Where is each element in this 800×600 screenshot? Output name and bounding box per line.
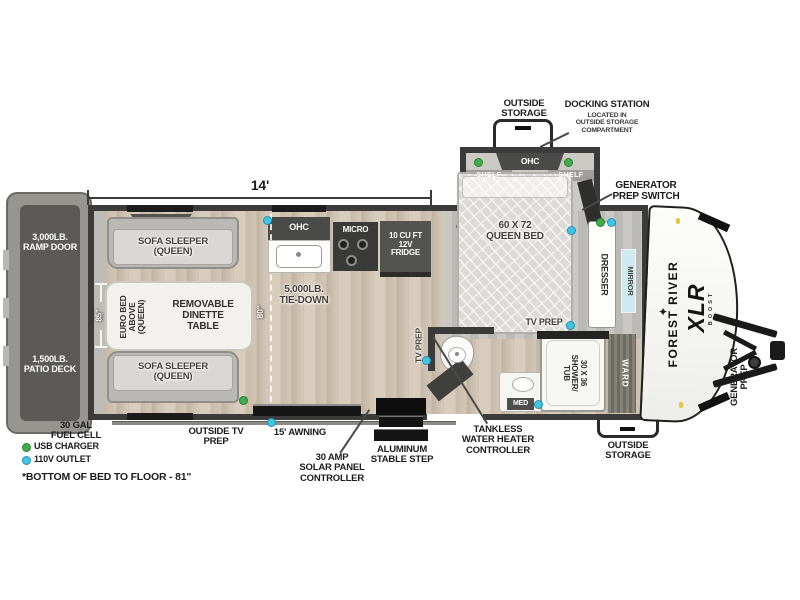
usb-charger-dot: [564, 158, 573, 167]
garage-depth-dim-line: [270, 214, 272, 412]
garage-depth-dim-label: 80": [256, 297, 268, 327]
garage-opening-dim-tick: [95, 283, 107, 285]
kitchen-ohc-label: OHC: [268, 223, 330, 233]
usb-charger-dot: [22, 443, 31, 452]
floorplan-canvas: 14' 3,000LB. RAMP DOOR 1,500LB. PATIO DE…: [0, 0, 800, 600]
awning-label: 15' AWNING: [268, 428, 332, 438]
110v-outlet-dot: [534, 400, 543, 409]
110v-outlet-dot: [263, 216, 272, 225]
ramp-door-label: 3,000LB. RAMP DOOR: [16, 233, 84, 252]
usb-charger-dot: [596, 218, 605, 227]
outside-storage-bottom-label: OUTSIDE STORAGE: [598, 441, 658, 462]
110v-outlet-dot: [22, 456, 31, 465]
length-dimension-tick-left: [87, 190, 89, 205]
tie-down-label: 5,000LB. TIE-DOWN: [272, 285, 336, 307]
window: [127, 205, 193, 212]
usb-charger-legend-label: USB CHARGER: [34, 442, 114, 452]
brand-model-logo: XLR BOOST: [686, 264, 720, 352]
bedroom-shelf-left-label: SHELF: [466, 172, 512, 180]
dinette-label: REMOVABLE DINETTE TABLE: [157, 300, 249, 332]
fridge-label: 10 CU FT 12V FRIDGE: [380, 232, 431, 258]
shower-tub-label: 30 X 36 SHOWER/ TUB: [559, 343, 587, 403]
docking-station-title: DOCKING STATION: [558, 100, 656, 110]
generator-prep-label: GENERATOR PREP: [730, 335, 752, 419]
docking-station-handle: [515, 126, 531, 130]
bath-wall-vertical: [428, 327, 435, 371]
ramp-hinge: [3, 250, 9, 270]
outside-storage-handle-bottom: [620, 427, 635, 431]
hitch-coupler: [770, 341, 785, 360]
docking-station-sub: LOCATED IN OUTSIDE STORAGE COMPARTMENT: [558, 112, 656, 134]
queen-bed-label: 60 X 72 QUEEN BED: [465, 221, 565, 243]
entry-step-interior: [376, 398, 426, 415]
patio-deck-label: 1,500LB. PATIO DECK: [16, 355, 84, 374]
sofa-sleeper-bottom-label: SOFA SLEEPER (QUEEN): [111, 362, 235, 383]
clearance-light: [676, 218, 680, 224]
length-dimension-tick-right: [430, 190, 432, 205]
length-dimension-line: [88, 197, 432, 199]
kitchen-faucet: [296, 252, 301, 257]
window: [127, 413, 193, 420]
window: [272, 205, 326, 212]
length-dimension-label: 14': [230, 178, 290, 193]
bed-to-floor-note: *BOTTOM OF BED TO FLOOR - 81": [22, 472, 242, 483]
brand-series-label: BOOST: [708, 264, 714, 352]
110v-outlet-legend-label: 110V OUTLET: [34, 455, 114, 465]
fuel-cell-label: 30 GAL FUEL CELL: [40, 421, 112, 442]
dresser-label: DRESSER: [596, 225, 609, 325]
stable-step-label: ALUMINUM STABLE STEP: [360, 445, 444, 466]
110v-outlet-dot: [566, 321, 575, 330]
tankless-controller-label: TANKLESS WATER HEATER CONTROLLER: [450, 425, 546, 456]
110v-outlet-dot: [607, 218, 616, 227]
euro-bed-label: EURO BED ABOVE (QUEEN): [119, 285, 147, 349]
110v-outlet-dot: [567, 226, 576, 235]
toilet-flush: [455, 352, 459, 356]
sofa-sleeper-top-label: SOFA SLEEPER (QUEEN): [111, 237, 235, 258]
110v-outlet-dot: [422, 356, 431, 365]
entry-step-tread: [379, 416, 423, 427]
ramp-hinge: [3, 346, 9, 366]
burner: [357, 239, 368, 250]
wardrobe-label: WARD: [616, 344, 629, 404]
clearance-light: [679, 402, 683, 408]
garage-opening-dim-label: 85": [96, 303, 107, 329]
brand-model-label: XLR: [686, 264, 708, 352]
outside-tv-prep-label: OUTSIDE TV PREP: [180, 427, 252, 448]
entry-step-tread: [374, 429, 428, 441]
microwave-label: MICRO: [333, 226, 378, 235]
med-cabinet-label: MED: [507, 400, 534, 408]
mirror-label: MIRROR: [622, 251, 634, 311]
garage-opening-dim-line: [100, 284, 102, 302]
bath-sink: [512, 377, 534, 392]
outside-storage-top-label: OUTSIDE STORAGE: [494, 99, 554, 120]
bath-wall-horizontal: [428, 327, 494, 334]
burner: [346, 255, 357, 266]
burner: [338, 239, 349, 250]
generator-prep-switch-label: GENERATOR PREP SWITCH: [600, 181, 692, 203]
110v-outlet-dot: [267, 418, 276, 427]
usb-charger-dot: [474, 158, 483, 167]
bedroom-shelf-right-label: SHELF: [548, 172, 594, 180]
brand-make-label: FOREST RIVER: [667, 244, 681, 384]
garage-opening-dim-line: [100, 330, 102, 347]
bedroom-tv-prep-label: TV PREP: [518, 318, 570, 328]
bedroom-tv-bar: [537, 331, 609, 339]
outside-tv-mount: [253, 404, 361, 416]
bedroom-ohc-label: OHC: [496, 157, 564, 166]
ramp-hinge: [3, 298, 9, 318]
usb-charger-dot: [239, 396, 248, 405]
garage-opening-dim-tick: [95, 346, 107, 348]
entry-door: [427, 414, 483, 420]
